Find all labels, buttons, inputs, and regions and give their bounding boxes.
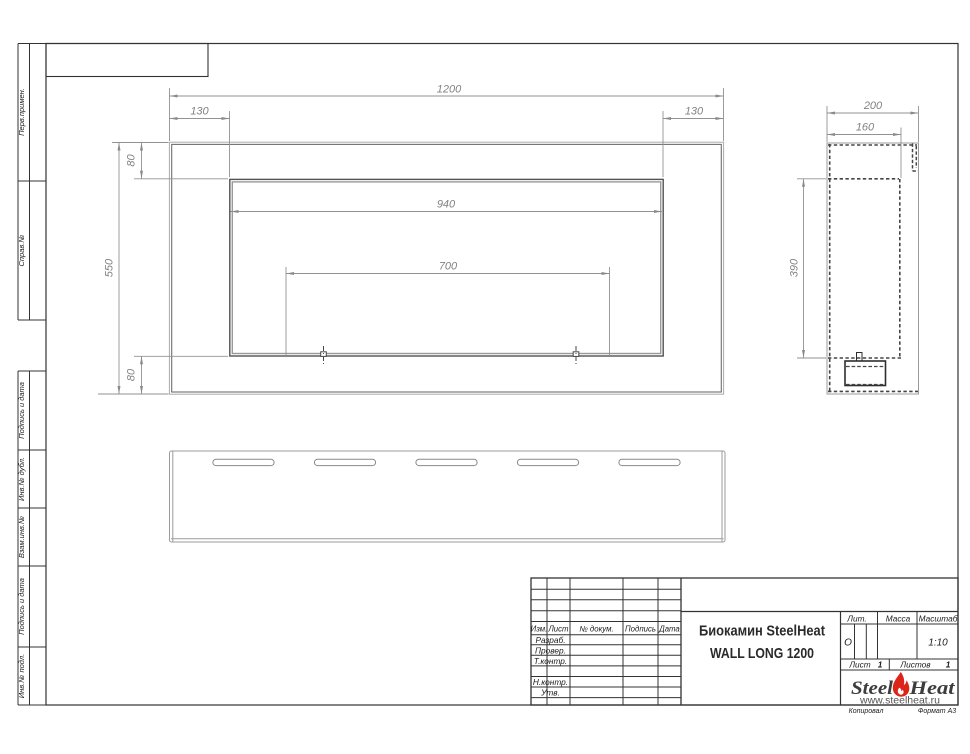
svg-text:130: 130 [685, 106, 704, 118]
svg-text:WALL LONG 1200: WALL LONG 1200 [710, 646, 814, 662]
svg-text:Формат A3: Формат A3 [918, 708, 956, 715]
svg-text:Масса: Масса [886, 614, 911, 624]
svg-text:Справ.№: Справ.№ [17, 234, 26, 266]
svg-text:Подпись и дата: Подпись и дата [17, 578, 26, 635]
svg-text:Лит.: Лит. [846, 614, 866, 624]
svg-text:Дата: Дата [658, 624, 680, 633]
svg-text:80: 80 [126, 154, 138, 167]
svg-text:940: 940 [437, 199, 456, 211]
svg-text:О: О [844, 638, 852, 649]
svg-text:80: 80 [126, 368, 138, 381]
svg-text:390: 390 [789, 258, 801, 277]
svg-text:Провер.: Провер. [535, 646, 566, 656]
svg-text:700: 700 [439, 261, 458, 273]
svg-text:200: 200 [863, 100, 883, 112]
svg-text:Масштаб: Масштаб [919, 614, 958, 624]
svg-text:1:10: 1:10 [928, 638, 948, 649]
svg-text:www.steelheat.ru: www.steelheat.ru [859, 695, 940, 707]
svg-text:1200: 1200 [437, 84, 462, 96]
svg-text:160: 160 [856, 122, 875, 134]
svg-text:550: 550 [104, 258, 116, 277]
svg-text:Инв.№ дубл.: Инв.№ дубл. [17, 457, 26, 501]
svg-text:Т.контр.: Т.контр. [534, 656, 567, 666]
svg-text:Копировал: Копировал [849, 708, 884, 715]
svg-text:Подпись и дата: Подпись и дата [17, 382, 26, 439]
svg-text:Лист: Лист [547, 624, 569, 633]
svg-text:Подпись: Подпись [625, 624, 656, 633]
svg-text:Изм.: Изм. [531, 624, 548, 633]
svg-text:№ докум.: № докум. [579, 624, 613, 633]
svg-text:Инв.№ подл.: Инв.№ подл. [17, 654, 26, 698]
svg-text:Н.контр.: Н.контр. [533, 677, 568, 687]
svg-text:Листов: Листов [899, 660, 931, 670]
svg-text:Разраб.: Разраб. [535, 635, 565, 645]
svg-text:130: 130 [190, 106, 209, 118]
svg-text:Перв.примен.: Перв.примен. [17, 88, 26, 136]
svg-text:1: 1 [878, 660, 883, 670]
svg-text:Лист: Лист [848, 660, 870, 670]
svg-text:1: 1 [946, 660, 951, 670]
svg-text:Утв.: Утв. [540, 687, 560, 697]
svg-text:Биокамин SteelHeat: Биокамин SteelHeat [699, 624, 825, 640]
svg-text:Взам.инв.№: Взам.инв.№ [17, 516, 26, 558]
